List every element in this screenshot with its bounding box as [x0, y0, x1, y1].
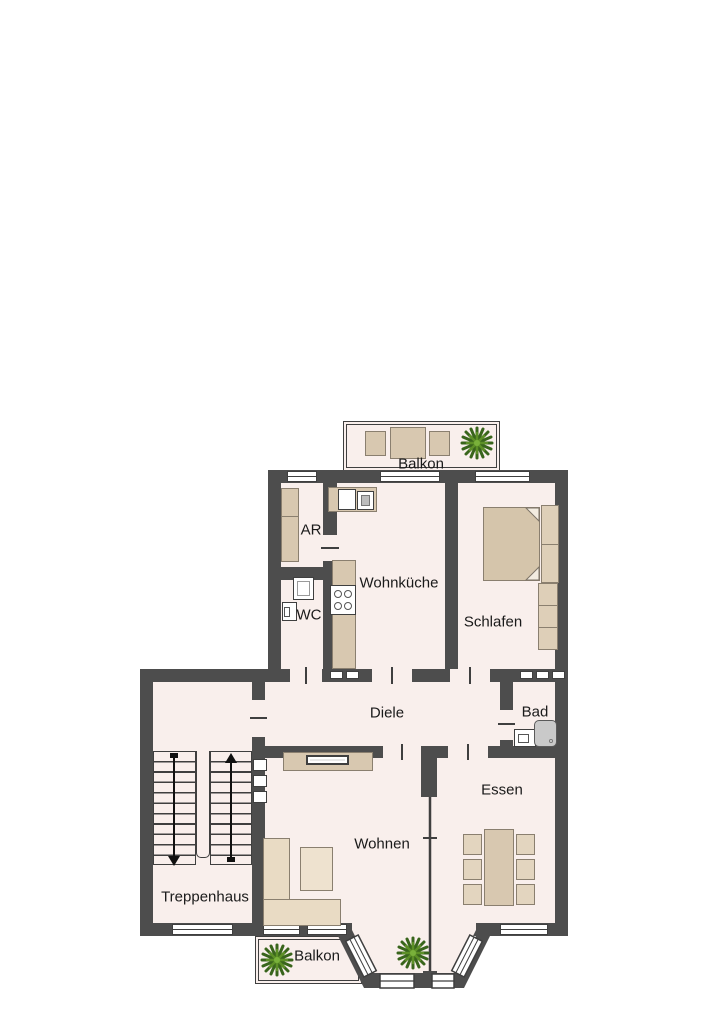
door-schlafen-tick: [469, 667, 471, 684]
door-wohnen-tick: [401, 744, 403, 760]
sofa-horizontal: [263, 899, 341, 926]
stair-flight-up: [210, 751, 252, 865]
label-wc: WC: [297, 607, 322, 624]
radiator-kitchen-2: [346, 671, 359, 679]
chair: [463, 884, 482, 905]
window-ar: [287, 471, 317, 482]
radiator-bad-2: [536, 671, 549, 679]
balcony-chair-right: [429, 431, 450, 456]
label-essen: Essen: [481, 782, 523, 799]
window-schlafen: [475, 471, 530, 482]
window-essen: [500, 924, 548, 935]
door-wohnkueche-tick: [391, 667, 393, 684]
chair: [463, 859, 482, 880]
label-balkon-top: Balkon: [398, 456, 444, 473]
radiator-wohnen-1: [253, 759, 267, 771]
door-bad: [500, 710, 513, 740]
wc-toilet: [282, 602, 297, 621]
door-wc-tick: [305, 667, 307, 684]
window-treppenhaus: [172, 924, 233, 935]
partition-bay-stub: [423, 971, 437, 987]
stair-gap: [196, 751, 210, 858]
wohnen-essen-wall-stub: [421, 746, 437, 797]
radiator-bad-1: [520, 671, 533, 679]
label-ar: AR: [301, 522, 322, 539]
chair: [516, 859, 535, 880]
label-diele: Diele: [370, 705, 404, 722]
dining-table: [484, 829, 514, 906]
door-entry-tick: [250, 717, 267, 719]
chair: [516, 834, 535, 855]
radiator-bad-3: [552, 671, 565, 679]
stair-flight-down: [153, 751, 196, 865]
kitchen-appliance: [357, 491, 374, 510]
label-wohnkueche: Wohnküche: [360, 575, 439, 592]
label-balkon-bottom: Balkon: [294, 948, 340, 965]
coffee-table: [300, 847, 333, 891]
balcony-table: [390, 427, 426, 459]
bay-window-bottom-right: [432, 974, 454, 988]
door-essen-tick: [467, 744, 469, 760]
schlafen-wardrobe: [538, 583, 558, 650]
ar-wardrobe: [281, 488, 299, 562]
radiator-wohnen-2: [253, 775, 267, 787]
bedside-wardrobe: [541, 505, 559, 583]
balcony-chair-left: [365, 431, 386, 456]
label-schlafen: Schlafen: [464, 614, 522, 631]
door-ar-tick: [321, 547, 339, 549]
chair: [463, 834, 482, 855]
tv: [306, 755, 349, 765]
kitchen-stove: [330, 585, 356, 615]
bay-window-bottom-left: [380, 974, 414, 988]
door-bad-tick: [498, 723, 515, 725]
radiator-kitchen-1: [330, 671, 343, 679]
wc-sink: [293, 577, 314, 600]
label-bad: Bad: [522, 704, 549, 721]
bed: [483, 507, 540, 581]
bad-toilet: [514, 729, 536, 747]
label-wohnen: Wohnen: [354, 836, 410, 853]
bay-window-right-angled: [452, 935, 483, 977]
label-treppenhaus: Treppenhaus: [161, 889, 249, 906]
kitchen-sink: [338, 489, 356, 510]
window-balcony-door: [380, 471, 440, 482]
plant-icon: [398, 938, 428, 968]
shower: [534, 720, 557, 747]
chair: [516, 884, 535, 905]
radiator-wohnen-3: [253, 791, 267, 803]
floorplan-canvas: Balkon AR WC Wohnküche Schlafen Diele Ba…: [0, 0, 724, 1024]
